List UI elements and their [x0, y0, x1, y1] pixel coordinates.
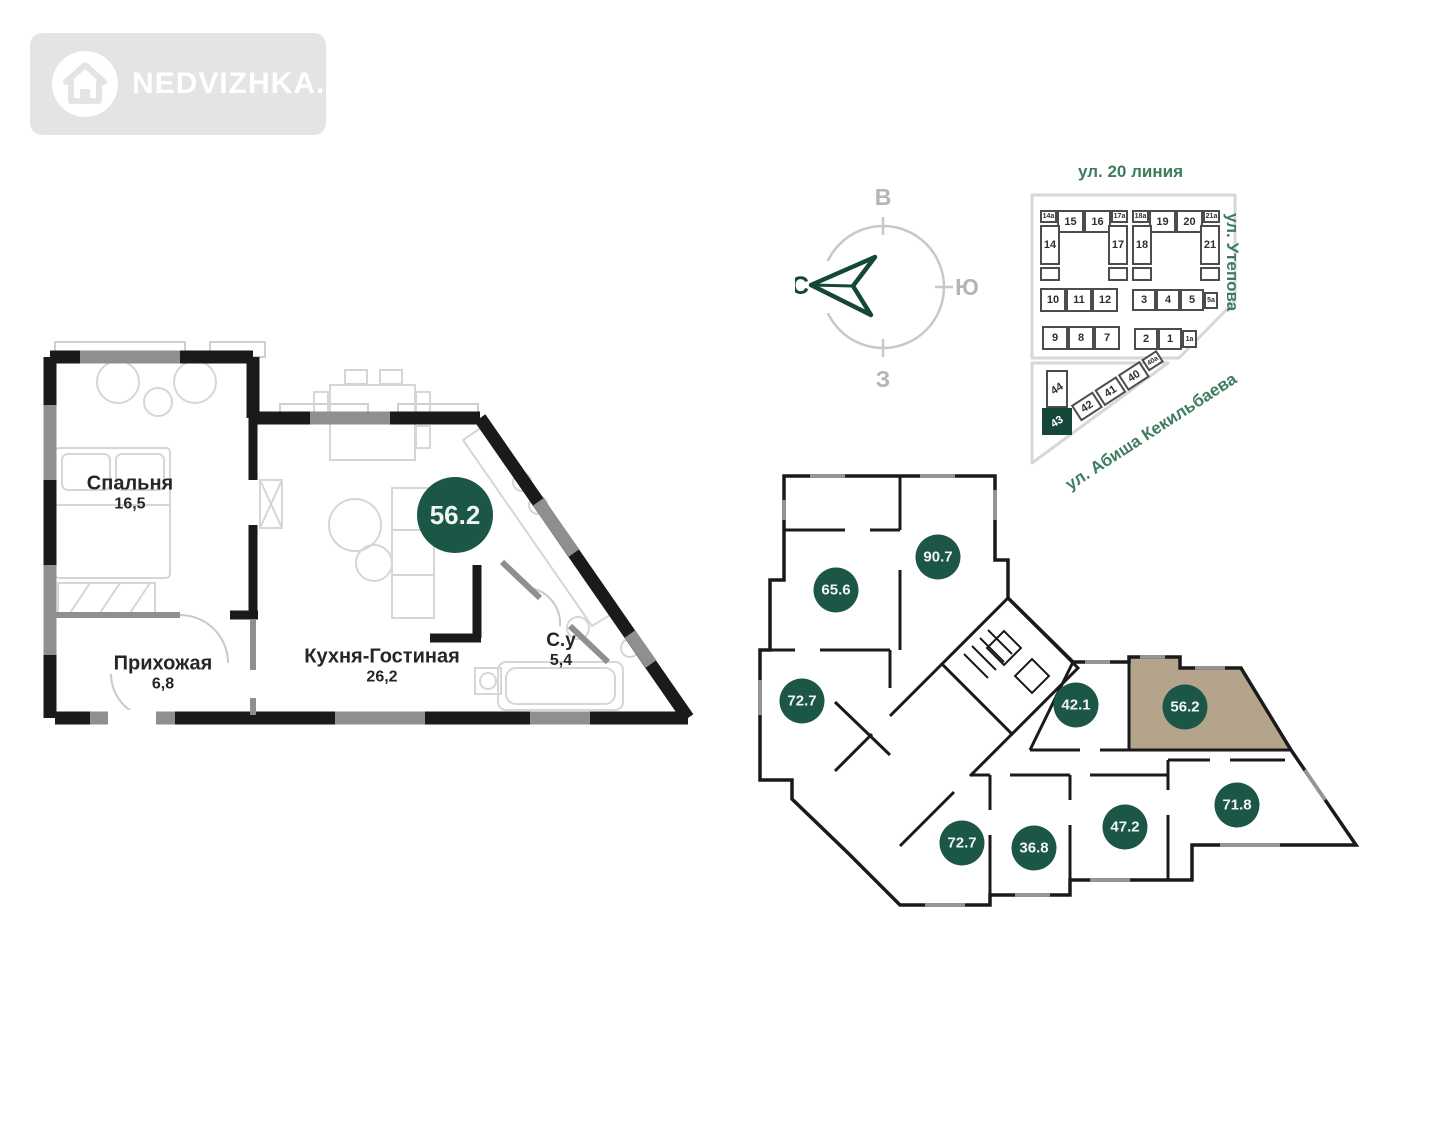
site-block-selected: 43	[1042, 408, 1072, 435]
compass-south-label: Ю	[955, 274, 979, 300]
room-area: 6,8	[114, 676, 213, 694]
site-block: 15	[1057, 210, 1084, 233]
site-block: 1а	[1182, 330, 1197, 348]
site-block: 5	[1180, 289, 1204, 311]
site-block: 19	[1149, 210, 1176, 233]
unit-badge: 72.7	[780, 679, 825, 724]
entry-door-gap	[108, 710, 156, 726]
compass-north-label: С	[795, 272, 809, 300]
unit-badge: 71.8	[1215, 783, 1260, 828]
room-label-bathroom: С.у 5,4	[546, 630, 576, 670]
site-block: 18а	[1132, 210, 1149, 223]
apartment-plan: Спальня 16,5 Прихожая 6,8 Кухня-Гостиная…	[30, 330, 700, 730]
site-block: 17а	[1111, 210, 1128, 223]
site-block	[1200, 267, 1220, 281]
site-block: 1	[1158, 328, 1182, 350]
compass-west-label: З	[876, 366, 890, 392]
unit-badge: 47.2	[1103, 805, 1148, 850]
site-block	[1108, 267, 1128, 281]
site-block: 3	[1132, 289, 1156, 311]
room-name: С.у	[546, 630, 576, 652]
site-block: 16	[1084, 210, 1111, 233]
site-block: 9	[1042, 326, 1068, 350]
site-block: 17	[1108, 225, 1128, 265]
page: NEDVIZHKA.KZ	[0, 0, 1440, 1136]
compass: В Ю З С	[795, 175, 985, 400]
room-name: Прихожая	[114, 653, 213, 676]
unit-badge: 42.1	[1054, 683, 1099, 728]
compass-east-label: В	[875, 184, 892, 210]
room-area: 16,5	[87, 496, 173, 514]
site-block: 10	[1040, 288, 1066, 312]
room-label-bedroom: Спальня 16,5	[87, 473, 173, 514]
site-block: 12	[1092, 288, 1118, 312]
house-icon	[52, 51, 118, 117]
room-name: Кухня-Гостиная	[304, 646, 460, 669]
site-block: 18	[1132, 225, 1152, 265]
site-block: 14а	[1040, 210, 1057, 223]
site-block: 8	[1068, 326, 1094, 350]
room-label-hallway: Прихожая 6,8	[114, 653, 213, 694]
total-area-badge: 56.2	[417, 477, 493, 553]
site-block	[1132, 267, 1152, 281]
street-label-top: ул. 20 линия	[1078, 162, 1183, 182]
site-block: 21	[1200, 225, 1220, 265]
room-area: 26,2	[304, 669, 460, 687]
site-block: 5а	[1204, 292, 1218, 309]
site-block: 4	[1156, 289, 1180, 311]
unit-badge: 65.6	[814, 568, 859, 613]
logo-text: NEDVIZHKA.KZ	[132, 33, 367, 135]
site-block-label: 44	[1049, 381, 1066, 398]
site-block: 44	[1046, 370, 1068, 408]
unit-badge: 90.7	[916, 535, 961, 580]
unit-badge: 36.8	[1012, 826, 1057, 871]
unit-badge: 72.7	[940, 821, 985, 866]
compass-drawing: В Ю З С	[795, 175, 985, 400]
selected-unit-area	[1129, 657, 1291, 750]
site-block-label: 43	[1049, 413, 1066, 430]
core-elevators-stairs	[964, 630, 1049, 693]
north-arrow-fold	[811, 285, 853, 286]
site-block: 2	[1134, 328, 1158, 350]
unit-badge-selected: 56.2	[1163, 685, 1208, 730]
site-block	[1040, 267, 1060, 281]
site-block: 14	[1040, 225, 1060, 265]
logo: NEDVIZHKA.KZ	[30, 33, 326, 135]
site-block: 20	[1176, 210, 1203, 233]
site-block: 21а	[1203, 210, 1220, 223]
room-area: 5,4	[546, 652, 576, 670]
room-name: Спальня	[87, 473, 173, 496]
site-block: 11	[1066, 288, 1092, 312]
site-block: 7	[1094, 326, 1120, 350]
street-label-right: ул. Утепова	[1222, 213, 1242, 311]
room-label-kitchen-living: Кухня-Гостиная 26,2	[304, 646, 460, 687]
floor-plate: 90.7 65.6 72.7 42.1 56.2 72.7 36.8 47.2 …	[740, 450, 1400, 920]
